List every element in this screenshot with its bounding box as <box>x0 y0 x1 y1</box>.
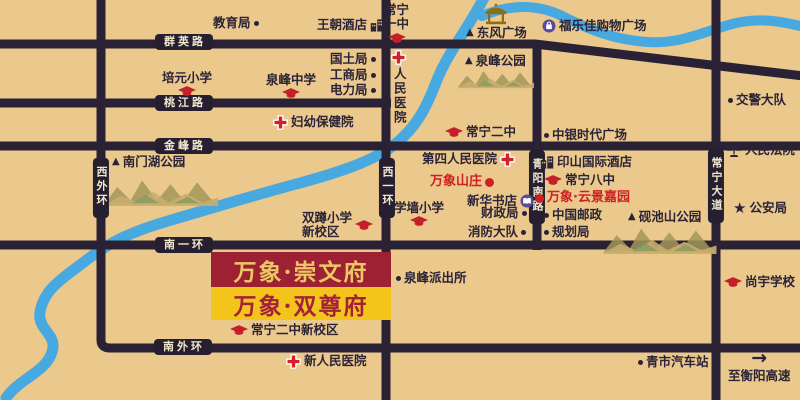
poi-label: 常宁二中 <box>466 125 516 139</box>
building-icon <box>540 155 554 169</box>
poi-changning-no1-middle-school: 常宁一中 <box>384 3 409 44</box>
poi-power-bureau: 电力局 <box>330 83 376 97</box>
poi-planning-bureau: 规划局 <box>544 225 590 239</box>
poi-label: 万象·云景嘉园 <box>547 191 630 206</box>
pavilion-icon <box>483 3 509 25</box>
poi-label: 交警大队 <box>736 93 786 107</box>
poi-fire-brigade: 消防大队 <box>468 225 526 239</box>
poi-label: 新人民医院 <box>304 354 367 368</box>
project-banner-shuangzunfu: 万象·双尊府 <box>211 287 391 320</box>
poi-label: 青市汽车站 <box>646 355 709 369</box>
triangle-icon: ▲ <box>112 157 120 167</box>
poi-maternal-child-hospital: 妇幼保健院 <box>273 115 354 130</box>
bullet-dot-icon <box>521 230 526 235</box>
poi-label: 消防大队 <box>468 225 518 239</box>
poi-quanfeng-park: ▲泉峰公园 <box>465 54 526 68</box>
red-dot-icon <box>535 194 544 203</box>
poi-fourth-peoples-hospital: 第四人民医院 <box>422 152 515 167</box>
bullet-dot-icon <box>544 230 549 235</box>
poi-label: 福乐佳购物广场 <box>559 19 647 33</box>
bullet-dot-icon <box>728 98 733 103</box>
bullet-dot-icon <box>522 211 527 216</box>
poi-label: 中国邮政 <box>552 208 602 222</box>
poi-changning-no8-middle-school: 常宁八中 <box>544 173 615 187</box>
red-dot-icon <box>485 178 494 187</box>
bullet-dot-icon <box>544 133 549 138</box>
poi-label: 工商局 <box>330 68 368 82</box>
poi-label: 常宁八中 <box>565 173 615 187</box>
grad-cap-icon <box>282 88 300 99</box>
poi-quanfeng-middle-school: 泉峰中学 <box>266 73 316 99</box>
bullet-dot-icon <box>396 276 401 281</box>
shopping-mall-icon <box>542 19 556 33</box>
poi-land-bureau: 国土局 <box>330 52 376 66</box>
poi-label-line: 双蹲小学 <box>302 211 352 225</box>
poi-label: 东风广场 <box>477 26 527 40</box>
poi-label: 财政局 <box>481 206 519 220</box>
poi-label: 电力局 <box>330 83 368 97</box>
project-banner-chongwenfu: 万象·崇文府 <box>211 252 391 287</box>
road-badge-nanwaihuan-road: 南外环 <box>154 339 212 355</box>
bullet-dot-icon <box>254 21 259 26</box>
building-icon <box>370 18 384 32</box>
road-badge-changning-avenue: 常宁大道 <box>708 149 724 223</box>
poi-label: 培元小学 <box>162 71 212 85</box>
grad-cap-icon <box>355 220 373 231</box>
poi-wangchao-hotel: 王朝酒店 <box>317 18 384 32</box>
poi-finance-bureau: 财政局 <box>481 206 527 220</box>
poi-wanxiang-villa: 万象山庄 <box>430 175 494 190</box>
poi-yinshan-international-hotel: 印山国际酒店 <box>540 155 632 169</box>
bullet-dot-icon <box>371 57 376 62</box>
location-map: 群英路桃江路金峰路南一环南外环西外环西一环青阳南路常宁大道 教育局王朝酒店常宁一… <box>0 0 800 400</box>
poi-label: 泉峰中学 <box>266 73 316 87</box>
poi-label-line: 一中 <box>384 17 409 31</box>
poi-label: 尚宇学校 <box>745 275 795 289</box>
bullet-dot-icon <box>638 360 643 365</box>
poi-peoples-hospital: 人民医院 <box>391 50 406 125</box>
scales-icon <box>726 143 742 158</box>
poi-nanmenhu-park: ▲南门湖公园 <box>112 155 185 169</box>
road-badge-jinfeng-road: 金峰路 <box>155 138 213 154</box>
road-badge-qunying-road: 群英路 <box>155 34 213 50</box>
grad-cap-icon <box>410 216 428 227</box>
triangle-icon: ▲ <box>466 28 474 38</box>
road-badge-xiyihuan-road: 西一环 <box>379 158 395 218</box>
poi-label: 中银时代广场 <box>552 128 627 142</box>
grad-cap-icon <box>724 277 742 288</box>
road-badge-nanyihuan-road: 南一环 <box>155 237 213 253</box>
poi-label: 印山国际酒店 <box>557 155 632 169</box>
hospital-cross-icon <box>273 115 288 130</box>
nanmenhu-park-art <box>104 168 218 212</box>
poi-yanchishan-park: ▲砚池山公园 <box>628 210 701 224</box>
poi-shangyu-school: 尚宇学校 <box>724 275 795 289</box>
poi-quanfeng-police-station: 泉峰派出所 <box>396 271 467 285</box>
poi-changning-no2-middle-school: 常宁二中 <box>445 125 516 139</box>
poi-label: 公安局 <box>749 201 787 215</box>
poi-label: 砚池山公园 <box>639 210 702 224</box>
poi-label: 人民医院 <box>391 67 405 125</box>
poi-label: 妇幼保健院 <box>291 115 354 129</box>
hospital-cross-icon <box>500 152 515 167</box>
triangle-icon: ▲ <box>628 212 636 222</box>
poi-to-hengyang-expressway: →至衡阳高速 <box>728 349 791 383</box>
poi-label-line: 新校区 <box>302 225 352 239</box>
poi-education-bureau: 教育局 <box>213 16 259 30</box>
poi-new-peoples-hospital: 新人民医院 <box>286 354 367 369</box>
poi-industry-commerce-bureau: 工商局 <box>330 68 376 82</box>
poi-label: 国土局 <box>330 52 368 66</box>
river-main <box>6 0 487 398</box>
poi-xueqiang-primary-school: 学墙小学 <box>394 201 444 227</box>
poi-label: 人民法院 <box>745 143 795 157</box>
grad-cap-icon <box>388 33 406 44</box>
poi-fulejia-shopping-plaza: 福乐佳购物广场 <box>542 19 647 33</box>
poi-label: 常宁二中新校区 <box>251 323 339 337</box>
poi-changning-no2-new-campus: 常宁二中新校区 <box>230 323 339 337</box>
poi-public-security-bureau: ★公安局 <box>733 201 787 216</box>
poi-label: 规划局 <box>552 225 590 239</box>
poi-peiyuan-primary-school: 培元小学 <box>162 71 212 97</box>
poi-zhongyin-times-square: 中银时代广场 <box>544 128 627 142</box>
hospital-cross-icon <box>286 354 301 369</box>
triangle-icon: ▲ <box>465 56 473 66</box>
poi-label: 王朝酒店 <box>317 18 367 32</box>
poi-wanxiang-yunjing-garden: 万象·云景嘉园 <box>535 191 630 206</box>
poi-label: 学墙小学 <box>394 201 444 215</box>
poi-dongfeng-square: ▲东风广场 <box>466 26 527 40</box>
yanchishan-park-art <box>590 222 730 254</box>
arrow-right-icon: → <box>751 349 767 368</box>
poi-label-line: 常宁 <box>384 3 409 17</box>
bullet-dot-icon <box>371 73 376 78</box>
grad-cap-icon <box>230 325 248 336</box>
poi-peoples-court: 人民法院 <box>726 143 795 158</box>
poi-label: 泉峰公园 <box>476 54 526 68</box>
poi-shuangdun-primary-school: 双蹲小学新校区 <box>302 211 373 240</box>
poi-qingshi-bus-station: 青市汽车站 <box>638 355 709 369</box>
road-badge-xiwaihuan-road: 西外环 <box>93 158 109 218</box>
grad-cap-icon <box>445 127 463 138</box>
bullet-dot-icon <box>371 88 376 93</box>
poi-china-post: 中国邮政 <box>544 208 602 222</box>
poi-label: 教育局 <box>213 16 251 30</box>
poi-label: 泉峰派出所 <box>404 271 467 285</box>
poi-label: 南门湖公园 <box>123 155 186 169</box>
grad-cap-icon <box>178 86 196 97</box>
poi-traffic-police-brigade: 交警大队 <box>728 93 786 107</box>
bullet-dot-icon <box>544 213 549 218</box>
grad-cap-icon <box>544 175 562 186</box>
poi-label: 万象山庄 <box>430 175 482 190</box>
star-icon: ★ <box>733 201 746 216</box>
hospital-cross-icon <box>391 50 406 65</box>
poi-label: 第四人民医院 <box>422 152 497 166</box>
poi-label: 至衡阳高速 <box>728 369 791 383</box>
